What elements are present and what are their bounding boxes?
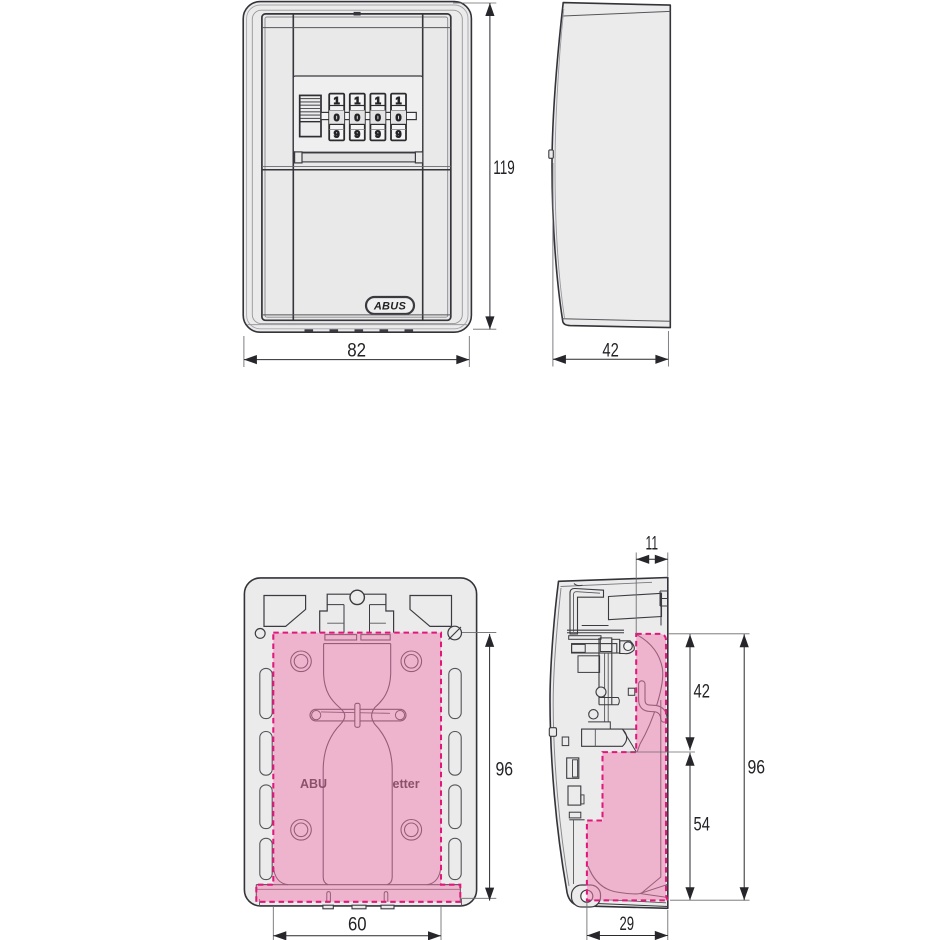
svg-text:29: 29 xyxy=(620,913,635,935)
svg-text:96: 96 xyxy=(496,759,514,781)
svg-text:96: 96 xyxy=(748,756,766,778)
svg-text:42: 42 xyxy=(602,339,618,361)
svg-text:60: 60 xyxy=(348,913,367,935)
svg-text:9: 9 xyxy=(334,129,340,141)
svg-text:82: 82 xyxy=(347,340,366,362)
svg-text:11: 11 xyxy=(646,533,659,555)
svg-text:ABUS: ABUS xyxy=(373,301,407,313)
svg-text:42: 42 xyxy=(694,680,710,702)
svg-text:1: 1 xyxy=(334,95,340,107)
svg-text:119: 119 xyxy=(493,157,515,179)
svg-text:0: 0 xyxy=(334,112,340,124)
svg-text:54: 54 xyxy=(694,814,711,836)
